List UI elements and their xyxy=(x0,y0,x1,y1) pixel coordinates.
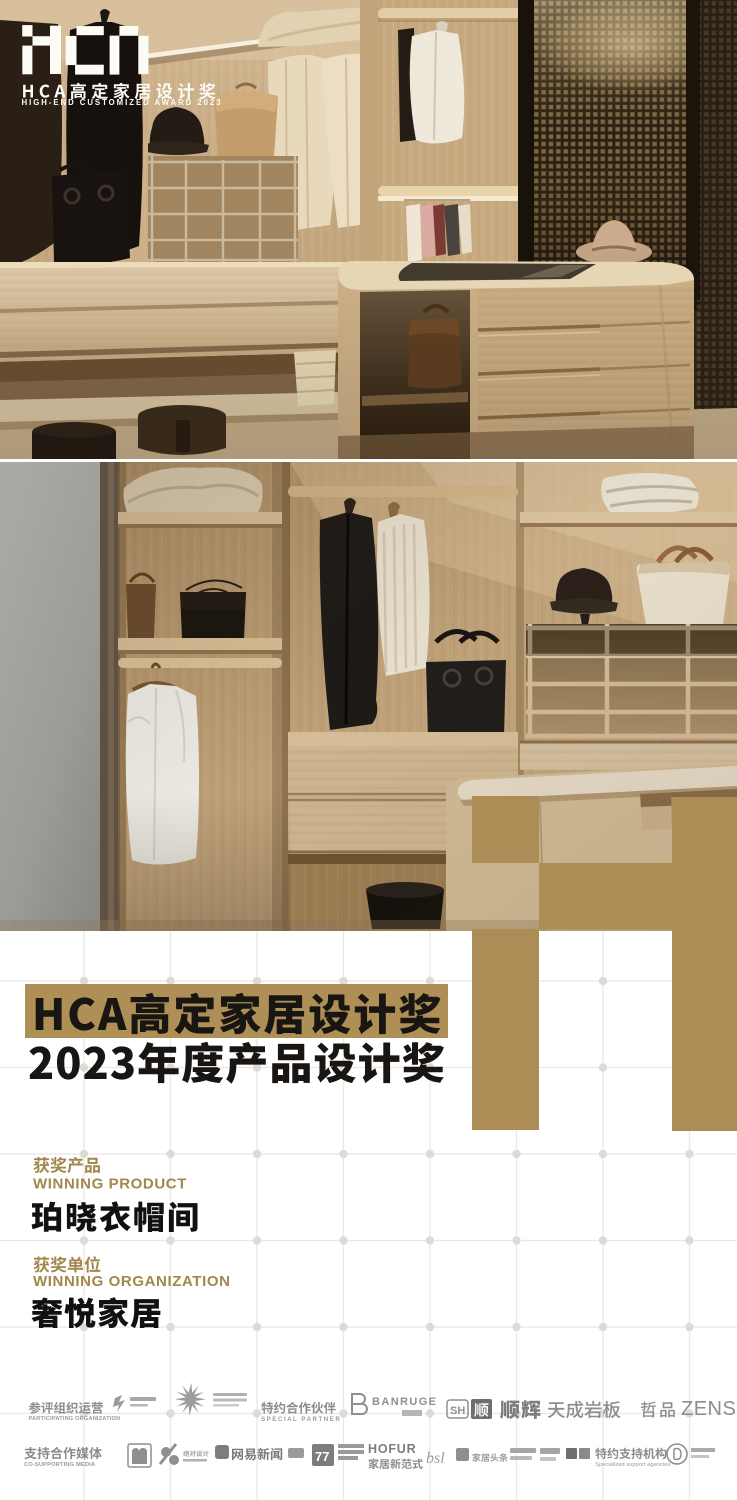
svg-text:WINNING ORGANIZATION: WINNING ORGANIZATION xyxy=(33,1273,231,1290)
svg-text:SH: SH xyxy=(450,1405,465,1417)
svg-text:HOFUR: HOFUR xyxy=(368,1442,416,1456)
svg-text:BANRUGE: BANRUGE xyxy=(372,1396,437,1408)
svg-text:77: 77 xyxy=(315,1449,329,1464)
svg-text:CO-SUPPORTING MEDIA: CO-SUPPORTING MEDIA xyxy=(24,1462,96,1468)
svg-text:PARTICIPATING ORGANIZATION: PARTICIPATING ORGANIZATION xyxy=(29,1416,121,1422)
svg-text:WINNING PRODUCT: WINNING PRODUCT xyxy=(33,1176,187,1193)
svg-text:Specialized support agencies: Specialized support agencies xyxy=(595,1462,671,1468)
svg-text:HIGH-END CUSTOMIZED AWARD 2023: HIGH-END CUSTOMIZED AWARD 2023 xyxy=(22,98,223,107)
svg-text:bsl: bsl xyxy=(426,1450,445,1467)
svg-text:ZENS: ZENS xyxy=(681,1398,736,1420)
svg-text:SPECIAL PARTNER: SPECIAL PARTNER xyxy=(261,1416,341,1423)
